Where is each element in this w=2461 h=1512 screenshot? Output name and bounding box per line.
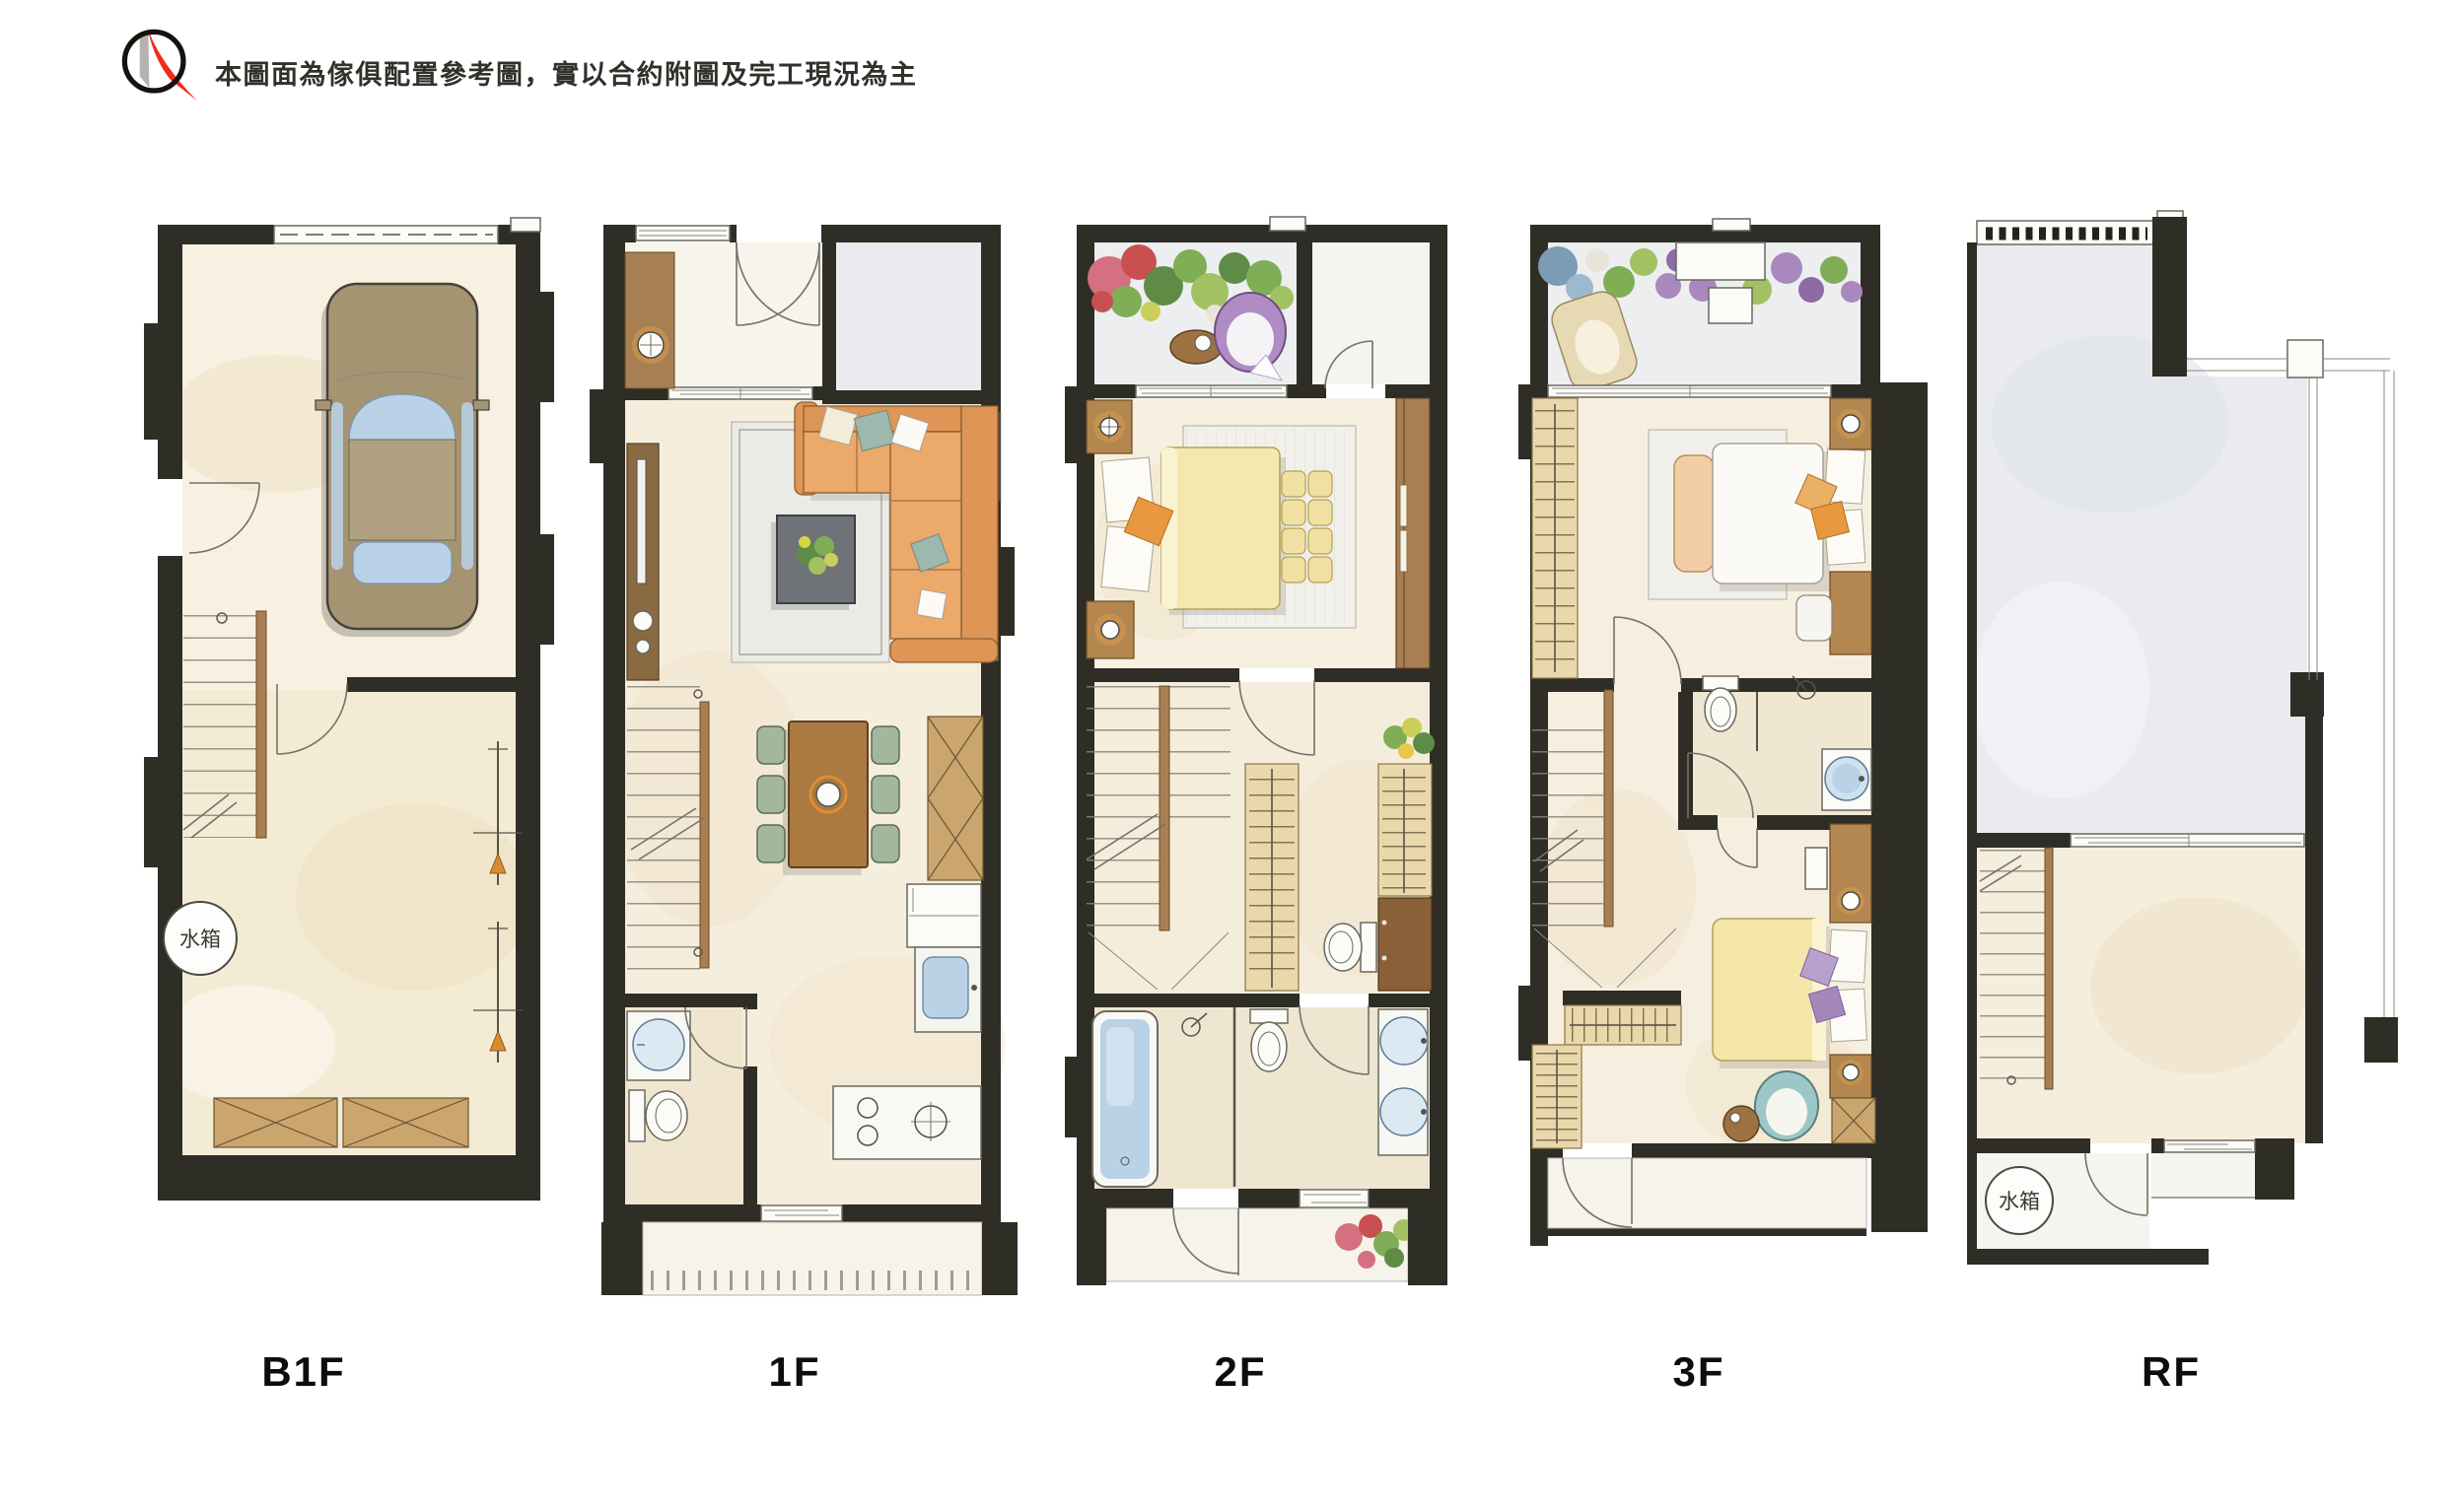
floorplan-1f [582,207,1025,1311]
pillow-orange [1811,502,1850,540]
coffee-table [771,515,855,610]
parapet-notch [1270,217,1305,231]
wardrobe [1396,398,1430,668]
kitchen-sink [923,957,968,1018]
basin [1380,1017,1428,1065]
bed [1713,444,1823,584]
floorplan-b1f: 水箱 [138,207,562,1222]
stove-counter [833,1086,981,1159]
tv-console [627,444,659,680]
bed-bench [1674,455,1714,572]
planter-bench [1676,242,1765,280]
nightstand [1087,601,1134,658]
toilet [1705,688,1736,731]
label-2f: 2F [1214,1348,1266,1396]
toilet [1251,1022,1287,1071]
floorplan-sheet: 本圖面為傢俱配置參考圖，實以合約附圖及完工現況為主 [0,0,2461,1512]
foyer-cabinet [625,252,674,388]
tv-screen [637,459,646,584]
compass-north-icon [110,18,205,112]
floorplan-3f [1518,207,1937,1276]
nightstand [1087,400,1132,453]
rf-parapet [1977,211,2183,244]
water-tank-label: 水箱 [179,928,221,951]
f1-front-porch [601,1222,1018,1295]
desk-chair [1796,595,1832,641]
nightstand [1830,398,1871,449]
compass-ring [124,32,183,91]
car [316,284,489,637]
bed [1161,447,1280,609]
b1f-water-tank: 水箱 [164,902,237,975]
bed [1713,919,1823,1061]
pillow [1829,929,1867,983]
f2-window [1136,385,1287,397]
disclaimer-text: 本圖面為傢俱配置參考圖，實以合約附圖及完工現況為主 [215,53,918,92]
desk [1830,572,1871,654]
water-tank-label: 水箱 [1999,1191,2040,1213]
label-rf: RF [2142,1348,2201,1396]
f3-rear-terrace [1548,1158,1866,1228]
planter-bench [1709,288,1752,323]
label-b1f: B1F [261,1348,345,1396]
pillow [854,410,894,450]
label-1f: 1F [768,1348,820,1396]
car-mirror-right [473,400,489,410]
side-table [1723,1106,1759,1141]
rf-floors [1972,244,2307,1249]
nightstand [1830,1055,1871,1098]
dining-set [757,722,899,875]
dresser [1378,898,1432,991]
compass-gray-blade [140,30,150,88]
floorplan-rf: 水箱 [1957,202,2406,1281]
label-3f: 3F [1672,1348,1724,1396]
car-rear-window [353,542,452,584]
pillow [917,589,947,619]
car-mirror-left [316,400,331,410]
floorplan-2f [1065,207,1459,1301]
pantry-cabinet [928,717,983,880]
rf-water-tank: 水箱 [1986,1167,2053,1234]
parapet-notch [1713,219,1750,231]
toilet [1324,924,1362,971]
basin [1380,1088,1428,1135]
rf-window [2071,834,2304,847]
parapet-notch [511,218,540,232]
b1f-garage-door [274,226,498,243]
f3-window [1548,385,1831,397]
